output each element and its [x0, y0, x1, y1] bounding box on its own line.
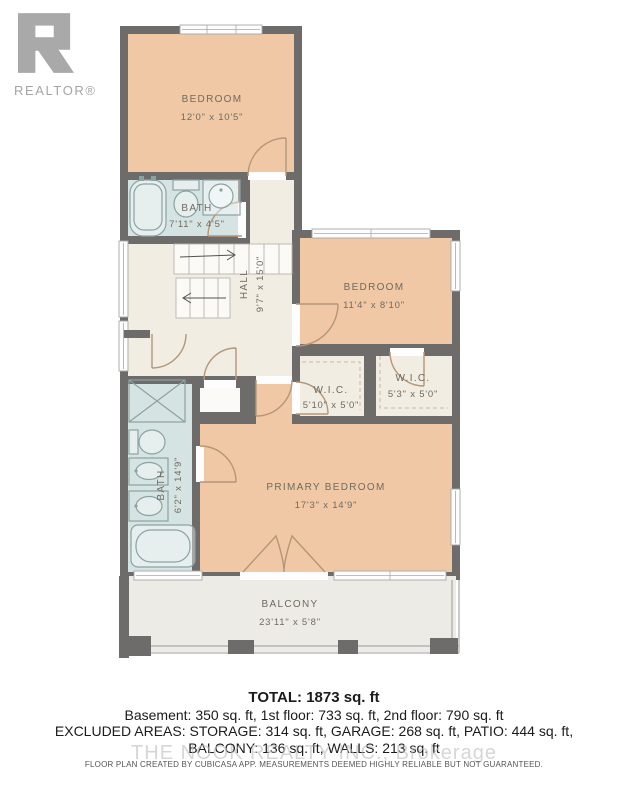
dims-wic-left: 5'10" x 5'0"	[303, 400, 359, 411]
realtor-logo: REALTOR®	[18, 12, 128, 98]
room-wic-right	[372, 352, 456, 420]
floor-plan-page: BEDROOM 12'0" x 10'5" BATH 7'11" x 4'5" …	[0, 0, 628, 812]
dims-bedroom-right: 11'4" x 8'10"	[343, 300, 405, 311]
bathtub-left	[131, 525, 195, 567]
realtor-logo-text: REALTOR®	[14, 83, 128, 98]
floor-plan-drawing: BEDROOM 12'0" x 10'5" BATH 7'11" x 4'5" …	[0, 0, 628, 678]
dims-hall: 9'7" x 15'0"	[255, 256, 266, 312]
dims-bath-top: 7'11" x 4'5"	[169, 219, 225, 230]
label-wic-left: W.I.C.	[313, 385, 348, 396]
dims-wic-right: 5'3" x 5'0"	[388, 389, 438, 400]
dims-balcony: 23'11" x 5'8"	[259, 617, 321, 628]
label-hall: HALL	[239, 269, 250, 299]
label-bath-left: BATH	[156, 469, 167, 500]
label-primary-bedroom: PRIMARY BEDROOM	[266, 482, 385, 493]
label-bedroom-right: BEDROOM	[344, 282, 405, 293]
dims-bedroom-top: 12'0" x 10'5"	[181, 112, 244, 123]
floor-areas-text: Basement: 350 sq. ft, 1st floor: 733 sq.…	[0, 707, 628, 724]
total-area-text: TOTAL: 1873 sq. ft	[0, 690, 628, 707]
dims-primary-bedroom: 17'3" x 14'9"	[295, 500, 358, 511]
realtor-r-icon	[18, 12, 74, 74]
dims-bath-left: 6'2" x 14'9"	[173, 457, 184, 513]
balcony-floor	[124, 576, 456, 652]
disclaimer-text: FLOOR PLAN CREATED BY CUBICASA APP. MEAS…	[0, 760, 628, 769]
excluded-areas-text-1: EXCLUDED AREAS: STORAGE: 314 sq. ft, GAR…	[0, 723, 628, 740]
toilet-left	[129, 430, 165, 454]
label-bedroom-top: BEDROOM	[182, 94, 243, 105]
hall-wall-stub	[124, 330, 150, 338]
bathtub-top	[130, 176, 166, 236]
label-balcony: BALCONY	[262, 599, 319, 610]
label-bath-top: BATH	[181, 203, 212, 214]
room-hall-closet	[196, 384, 244, 416]
label-wic-right: W.I.C.	[395, 373, 430, 384]
